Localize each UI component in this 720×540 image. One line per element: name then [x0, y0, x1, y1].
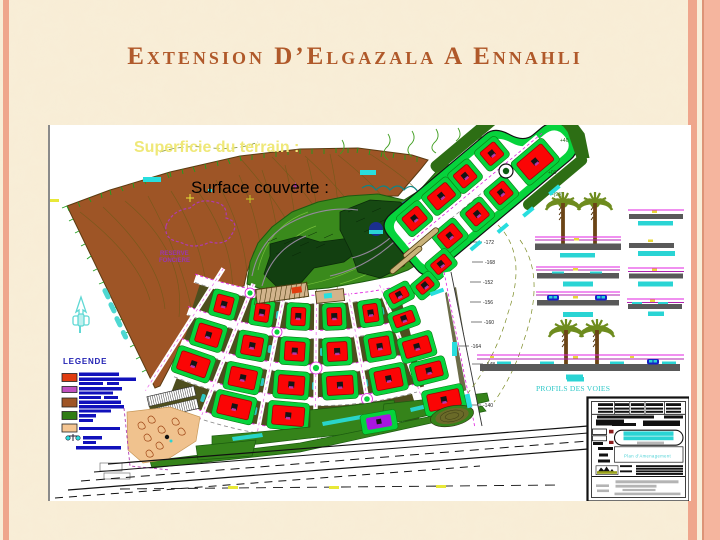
svg-text:-140: -140 — [483, 403, 493, 409]
svg-text:-156: -156 — [483, 300, 493, 306]
svg-text:-152: -152 — [483, 280, 493, 286]
svg-text:LEGENDE: LEGENDE — [63, 357, 107, 366]
svg-text:-172: -172 — [484, 240, 494, 246]
svg-text:FONCIERE: FONCIERE — [159, 258, 190, 264]
svg-text:-160: -160 — [484, 320, 494, 326]
svg-text:-168: -168 — [485, 260, 495, 266]
svg-text:-164: -164 — [471, 344, 481, 350]
svg-text:Plan d'Amenagement: Plan d'Amenagement — [624, 454, 672, 459]
svg-text:RESERVE: RESERVE — [160, 251, 189, 257]
svg-text:+40: +40 — [560, 138, 569, 144]
svg-text:+00: +00 — [548, 170, 557, 176]
svg-text:PROFILS DES VOIES: PROFILS DES VOIES — [536, 384, 610, 393]
